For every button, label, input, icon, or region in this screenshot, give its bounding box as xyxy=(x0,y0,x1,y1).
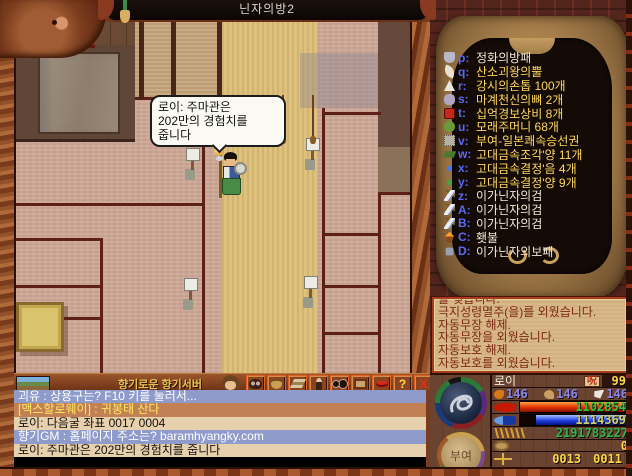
item-slot: w: xyxy=(458,147,476,161)
floor-line xyxy=(322,112,381,115)
coordinate-x: 0013 xyxy=(552,452,581,466)
item-slot: C: xyxy=(458,230,476,244)
message-line: 극지성령멸주(을)를 외웠습니다. xyxy=(438,306,622,319)
lamp xyxy=(186,148,200,175)
character-robe xyxy=(222,178,241,195)
character-panel: 부여 로이 呪 99 146 146 146 1102854 xyxy=(430,373,632,467)
right-panel: p: 정화의방패 q: 산소괴왕의뿔 r: 강시의손톱 100개 s: 마계천신… xyxy=(430,0,632,476)
frame-right-edge xyxy=(626,0,632,476)
item-slot: v: xyxy=(458,134,476,148)
item-icon xyxy=(444,232,455,243)
money-value: 0 xyxy=(509,439,628,453)
floor-line xyxy=(14,203,205,206)
stat-value: 146 xyxy=(606,387,628,401)
player-character[interactable] xyxy=(200,146,242,200)
picture-board-icon xyxy=(354,379,367,389)
item-icon xyxy=(444,94,455,105)
map-viewport[interactable]: 로이: 주마관은 202만의 경험치를 줍니다 xyxy=(14,22,410,373)
wall-post xyxy=(217,22,222,100)
monster-icon xyxy=(249,379,262,389)
floor-line xyxy=(100,238,103,373)
chat-line: 향기GM : 홈페이지 주소는? baramhyangky.com xyxy=(14,430,426,443)
item-icon xyxy=(444,52,455,63)
item-icon xyxy=(444,218,455,229)
floor-line xyxy=(322,233,381,236)
item-slot: p: xyxy=(458,51,476,65)
floor-line xyxy=(14,285,103,288)
chat-empty-row xyxy=(14,457,426,467)
mp-value: 1114369 xyxy=(575,413,626,427)
item-slot: z: xyxy=(458,189,476,203)
exp-icon xyxy=(494,428,526,438)
item-icon xyxy=(444,190,455,201)
message-line: 자동보호를 외웠습니다. xyxy=(438,357,622,370)
item-icon xyxy=(447,166,453,172)
item-icon xyxy=(444,204,455,215)
map-title: 닌자의방2 xyxy=(239,2,295,16)
message-log-lines: 를 찢습니다.극지성령멸주(을)를 외웠습니다.자동무장 해제.자동무장을 외웠… xyxy=(434,297,626,370)
item-icon xyxy=(444,121,455,132)
chat-line: 로이: 다음굴 좌표 0017 0004 xyxy=(14,417,426,430)
hp-icon xyxy=(494,403,516,412)
frame-bottom-rail xyxy=(0,467,632,476)
stat-cell: 146 xyxy=(544,387,578,401)
speech-line: 202만의 경험치를 xyxy=(158,114,278,128)
stat-rows: 로이 呪 99 146 146 146 1102854 xyxy=(490,375,630,467)
speech-bubble: 로이: 주마관은 202만의 경험치를 줍니다 xyxy=(150,95,286,147)
map-title-banner: 닌자의방2 xyxy=(104,0,430,22)
item-slot: r: xyxy=(458,79,476,93)
chat-lines: 괴유 : 상용구는? F10 키를 눌러서...[맥스할로웨이] : 귀봉태 산… xyxy=(14,390,426,457)
floor-line xyxy=(378,192,381,373)
inventory-item[interactable]: B: 이가닌자의검 xyxy=(444,217,582,231)
floor-line xyxy=(14,238,103,241)
money-bag-icon xyxy=(271,379,282,389)
item-slot: A: xyxy=(458,203,476,217)
hp-value: 1102854 xyxy=(575,400,626,414)
item-icon xyxy=(444,135,455,146)
game-window: 로이: 주마관은 202만의 경험치를 줍니다 닌자의방2 향기로운 향기서버 … xyxy=(0,0,632,476)
hp-bar: 1102854 xyxy=(519,401,628,413)
mural-painting xyxy=(38,52,120,134)
paw-icon xyxy=(544,390,554,399)
speech-line: 로이: 주마관은 xyxy=(158,100,278,114)
item-icon xyxy=(442,65,456,79)
stat-cell: 146 xyxy=(494,387,528,401)
message-line: 자동보호 해제. xyxy=(438,344,622,357)
map-wall-straw xyxy=(135,22,222,100)
item-slot: s: xyxy=(458,92,476,106)
message-line: 자동무장을 외웠습니다. xyxy=(438,331,622,344)
wall-post xyxy=(171,22,176,100)
inventory-list: p: 정화의방패 q: 산소괴왕의뿔 r: 강시의손톱 100개 s: 마계천신… xyxy=(444,51,582,258)
character-shield xyxy=(234,162,247,175)
item-slot: B: xyxy=(458,216,476,230)
coordinates: 0013 0011 xyxy=(512,452,628,466)
character-name: 로이 xyxy=(494,375,584,387)
level-value: 99 xyxy=(602,375,628,387)
item-slot: u: xyxy=(458,120,476,134)
dragon-emblem-icon xyxy=(440,382,482,424)
item-name: 이가닌자의보패 xyxy=(476,243,553,260)
item-slot: D: xyxy=(458,244,476,258)
hanging-broom-icon xyxy=(120,0,130,24)
mp-bar: 1114369 xyxy=(519,414,628,426)
coordinates-row: 0013 0011 xyxy=(492,452,630,465)
chat-line: 괴유 : 상용구는? F10 키를 눌러서... xyxy=(14,390,426,403)
hanging-tassel xyxy=(312,95,314,140)
money-row: 0 xyxy=(492,440,630,452)
money-icon xyxy=(494,441,509,451)
stat-value: 146 xyxy=(506,387,528,401)
map-wall-dark xyxy=(378,22,410,195)
item-icon xyxy=(447,179,453,185)
map-bench xyxy=(16,302,64,352)
item-slot: q: xyxy=(458,65,476,79)
clan-emblem-button[interactable] xyxy=(435,377,487,429)
compass-icon xyxy=(494,453,512,465)
message-line: 자동무장 해제. xyxy=(438,319,622,332)
stat-cell: 146 xyxy=(594,387,628,401)
item-slot: x: xyxy=(458,161,476,175)
inventory-item[interactable]: D: 이가닌자의보패 xyxy=(444,244,582,258)
message-line: 를 찢습니다. xyxy=(438,297,622,306)
lamp xyxy=(304,276,318,303)
staff-ring-icon xyxy=(216,156,223,161)
item-icon xyxy=(444,108,455,119)
person-icon xyxy=(316,378,322,390)
claw-icon xyxy=(594,390,604,399)
curse-button[interactable]: 呪 xyxy=(584,376,600,387)
item-slot: y: xyxy=(458,175,476,189)
mp-icon xyxy=(494,416,516,425)
stat-value: 146 xyxy=(556,387,578,401)
binoculars-icon xyxy=(332,380,340,388)
frame-divider-rail xyxy=(410,22,432,373)
item-slot: t: xyxy=(458,106,476,120)
message-log: 를 찢습니다.극지성령멸주(을)를 외웠습니다.자동무장 해제.자동무장을 외웠… xyxy=(432,297,628,373)
map-wall-mural xyxy=(14,45,135,142)
minimap-button[interactable] xyxy=(16,376,50,391)
floor-line xyxy=(322,332,381,335)
wall-post xyxy=(139,22,144,100)
speech-line: 줍니다 xyxy=(158,128,278,142)
item-icon xyxy=(446,247,454,255)
fist-icon xyxy=(494,390,504,399)
chat-window[interactable]: 괴유 : 상용구는? F10 키를 눌러서...[맥스할로웨이] : 귀봉태 산… xyxy=(14,390,426,457)
item-stack-icon xyxy=(289,379,305,388)
chat-line: 로이: 주마관은 202만의 경험치를 줍니다 xyxy=(14,444,426,457)
item-icon xyxy=(444,80,455,91)
lips-icon xyxy=(376,381,388,387)
item-icon xyxy=(443,151,456,158)
coordinate-y: 0011 xyxy=(593,452,622,466)
floor-line xyxy=(322,285,381,288)
lamp xyxy=(184,278,198,305)
chat-line: [맥스할로웨이] : 귀봉태 산다 xyxy=(14,403,426,416)
